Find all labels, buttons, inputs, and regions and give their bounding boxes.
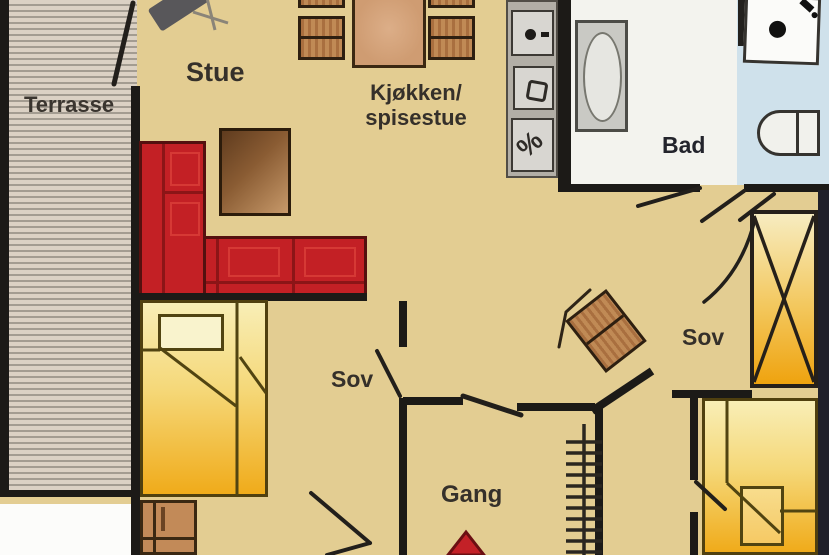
hall-top-wall (403, 397, 463, 405)
burner-dot (525, 29, 536, 40)
bedroom-left-wall (399, 301, 407, 347)
burner-dash (541, 32, 549, 37)
desk-chair-icon (565, 289, 647, 373)
sofa-seam (216, 239, 219, 295)
pillow (158, 314, 224, 351)
bathroom-bottom-wall (744, 184, 829, 192)
bathtub-basin (583, 32, 622, 122)
hall-right-wall (595, 408, 603, 555)
bathtub-icon (575, 20, 628, 132)
sofa-cushion (304, 247, 356, 277)
shower-icon (743, 0, 821, 65)
room-label-bath: Bad (662, 132, 705, 159)
dining-table-icon (352, 0, 426, 68)
toilet-tank (796, 110, 820, 156)
shower-drain (769, 21, 787, 39)
floor-plan: Terrasse Stue Kjøkken/ spisestue % (0, 0, 829, 555)
sofa-seam (162, 144, 165, 295)
chair-icon (428, 0, 475, 8)
room-label-living: Stue (186, 57, 245, 88)
dishwasher-icon: % (511, 118, 554, 172)
duvet-fold (740, 486, 784, 546)
dishwasher-symbol: % (511, 125, 550, 164)
room-label-kitchen-line1: Kjøkken/ (345, 80, 487, 105)
chair-icon (298, 0, 345, 8)
sofa-cushion (170, 202, 200, 236)
sofa-seam (292, 239, 295, 295)
hall-top-wall (517, 403, 595, 411)
hall-diagonal-wall (592, 371, 652, 411)
bedroom-right-left-wall (690, 396, 698, 480)
sink-basin (525, 79, 548, 102)
chair-icon (428, 16, 475, 60)
chair-icon (298, 16, 345, 60)
dresser-handle (161, 507, 165, 531)
kitchen-counter: % (506, 0, 558, 178)
coffee-table-icon (219, 128, 291, 216)
bedroom-right-top-wall (672, 390, 752, 398)
sofa-cushion (228, 247, 280, 277)
bedroom-left-wall (399, 398, 407, 555)
sink-icon (513, 66, 554, 110)
bedroom-left-closet-door (311, 493, 370, 555)
shower-fixture-dot (811, 12, 817, 18)
bed-icon (140, 300, 268, 497)
room-label-terrace: Terrasse (24, 92, 114, 118)
wood-stove-icon (148, 0, 211, 32)
room-label-hall: Gang (441, 481, 502, 509)
terrace-deck (0, 0, 137, 497)
hall-door (463, 396, 521, 415)
entrance-arrow-icon (448, 532, 484, 555)
sofa-icon (139, 141, 206, 298)
bedroom-left-door (377, 351, 400, 396)
right-outer-wall (818, 190, 829, 555)
room-label-kitchen-line2: spisestue (345, 105, 487, 130)
room-label-bedroom-right: Sov (682, 324, 724, 351)
shower-fixture (799, 0, 814, 13)
bed-icon (702, 398, 818, 555)
sofa-seam (162, 191, 203, 194)
wardrobe-icon (750, 210, 818, 388)
bathroom-door (638, 188, 744, 221)
room-label-kitchen: Kjøkken/ spisestue (345, 80, 487, 130)
outside-area (0, 504, 131, 555)
cooktop-icon (511, 10, 554, 56)
room-label-bedroom-left: Sov (331, 366, 373, 393)
terrace-left-wall (0, 0, 9, 497)
dresser-detail (153, 503, 156, 552)
dresser-detail (143, 537, 194, 540)
toilet-icon (757, 110, 799, 156)
bathroom-left-wall (558, 0, 571, 192)
bathroom-bottom-wall (558, 184, 700, 192)
dresser-icon (140, 500, 197, 555)
bedroom-right-left-wall (690, 512, 698, 555)
sofa-cushion (170, 152, 200, 186)
